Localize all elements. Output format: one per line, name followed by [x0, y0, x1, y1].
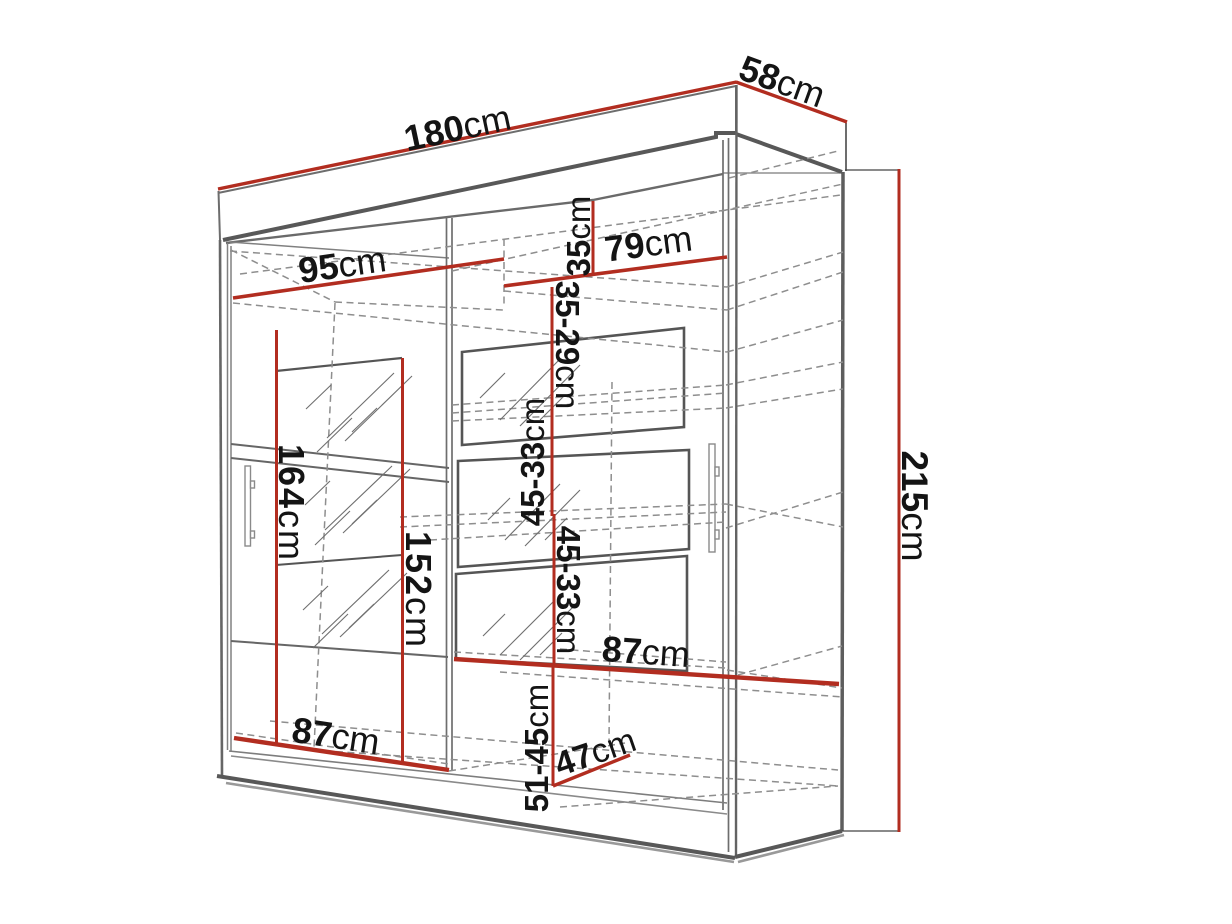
svg-text:35cm: 35cm — [560, 196, 597, 277]
svg-text:87cm: 87cm — [601, 628, 692, 675]
svg-text:45-33cm: 45-33cm — [550, 526, 587, 654]
svg-text:152cm: 152cm — [398, 531, 439, 649]
svg-text:35-29cm: 35-29cm — [549, 281, 586, 409]
svg-text:215cm: 215cm — [894, 450, 935, 561]
svg-text:45-33cm: 45-33cm — [514, 398, 551, 526]
svg-text:164cm: 164cm — [271, 444, 312, 562]
